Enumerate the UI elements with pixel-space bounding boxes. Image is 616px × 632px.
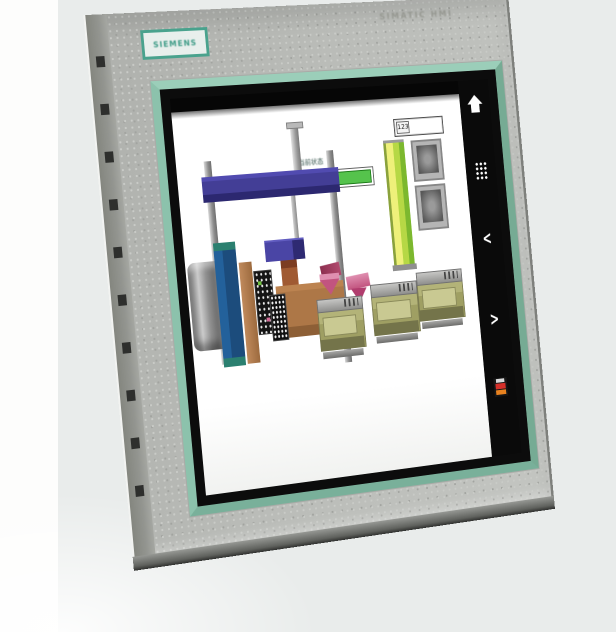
value-input-field[interactable]: 123 — [393, 116, 444, 137]
device-left-side-face — [85, 14, 155, 557]
press-teal-cap-bottom — [223, 356, 246, 367]
gantry-beam-blue — [201, 167, 340, 203]
home-icon — [467, 94, 484, 114]
green-bezel-trim: 123 当前状态 — [150, 61, 538, 517]
gantry-hoist-rod — [291, 195, 299, 240]
alarm-button[interactable] — [483, 324, 514, 397]
siemens-logo-text: SIEMENS — [153, 38, 198, 49]
lift-column-base — [393, 263, 417, 271]
control-cabinet-upper — [410, 138, 444, 182]
keypad-pink-key — [267, 317, 271, 321]
gantry-mast — [290, 126, 303, 177]
cabinet-inner-screen — [416, 144, 439, 174]
workbench-top-box — [280, 259, 298, 287]
nav-sidebar: < > — [458, 79, 522, 457]
photo-scene: SIEMENS SIMATIC HMI 123 当前状态 — [0, 0, 616, 632]
touchscreen[interactable]: 123 当前状态 — [170, 79, 522, 495]
mounting-clamp-slots — [96, 56, 146, 514]
hmi-panel-device: SIEMENS SIMATIC HMI 123 当前状态 — [83, 0, 553, 557]
value-input-text: 123 — [396, 121, 410, 134]
alarm-icon-orange — [496, 389, 506, 395]
unit-vent-slots — [399, 283, 413, 292]
screen-black-bezel: 123 当前状态 — [160, 69, 531, 506]
unit-panel — [322, 314, 357, 337]
control-cabinet-lower — [415, 183, 450, 231]
keypad-green-key — [258, 281, 262, 285]
keypad-button[interactable] — [463, 113, 494, 181]
process-unit-3 — [416, 268, 465, 329]
next-page-button[interactable]: > — [481, 309, 507, 330]
status-label: 当前状态 — [298, 157, 324, 168]
lift-column-yellow-green — [383, 139, 415, 270]
alarm-icon — [493, 377, 508, 397]
keypad-icon — [474, 161, 488, 180]
cabinet-inner-screen — [420, 189, 443, 223]
unit-panel — [376, 299, 412, 322]
unit1-hopper-pink — [320, 278, 341, 295]
gantry-mast-cap — [286, 121, 304, 129]
unit-vent-slots — [444, 271, 458, 280]
prev-page-button[interactable]: < — [474, 229, 501, 249]
gantry-carriage-blue — [264, 237, 305, 262]
process-unit-1 — [316, 296, 365, 360]
unit-panel — [422, 287, 458, 309]
model-label: SIMATIC HMI — [379, 9, 453, 22]
unit-vent-slots — [344, 298, 359, 307]
siemens-logo: SIEMENS — [140, 27, 210, 60]
process-unit-2 — [370, 281, 420, 344]
home-button[interactable] — [460, 79, 488, 114]
